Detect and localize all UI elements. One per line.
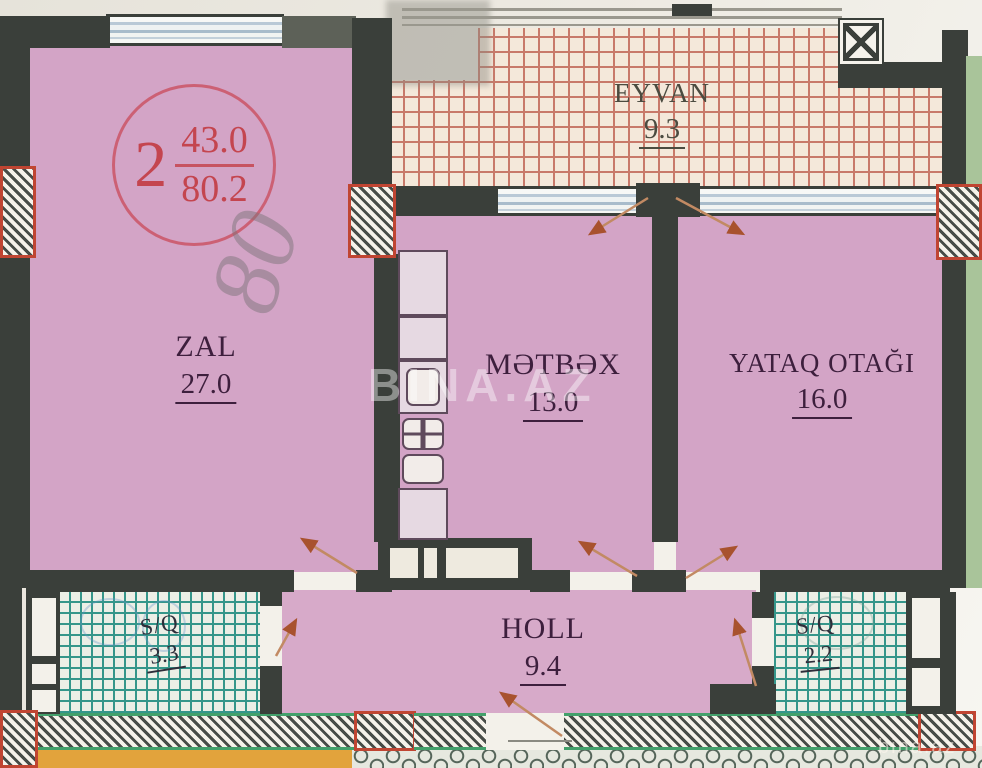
exterior-green-edge [966, 56, 982, 588]
stamp-areas: 43.0 80.2 [175, 120, 254, 211]
bathroom-fixture-sketch [80, 598, 140, 646]
door-opening [260, 606, 282, 666]
wall-segment [838, 62, 948, 88]
wall-segment [942, 30, 968, 588]
room-name: S/Q [138, 609, 180, 641]
kitchen-counter [398, 316, 448, 360]
wall-segment [26, 570, 294, 592]
cabinet-door [424, 548, 437, 578]
label-zal: ZAL 27.0 [175, 330, 236, 404]
wall-segment [0, 16, 30, 172]
balcony-tiles [388, 80, 480, 188]
wall-segment [632, 570, 686, 592]
door-opening [686, 572, 760, 590]
stamp-living-area: 43.0 [175, 120, 254, 167]
stamp-unit-number: 2 [134, 132, 167, 198]
scan-smudge [386, 0, 490, 86]
wall-segment [710, 684, 776, 714]
balcony-railing [402, 24, 842, 26]
door-opening [752, 618, 774, 666]
wall-segment [636, 183, 700, 217]
wall-segment [260, 592, 282, 606]
label-holl: HOLL 9.4 [501, 612, 585, 686]
kitchen-stove [402, 418, 444, 450]
watermark-center: BINA.AZ [368, 358, 597, 412]
hatched-column [348, 184, 396, 258]
door-opening [294, 572, 358, 590]
window [106, 14, 284, 46]
column-marker-icon [843, 23, 879, 61]
window [912, 598, 940, 658]
room-area: 3.3 [143, 639, 186, 674]
label-yataq: YATAQ OTAĞI 16.0 [729, 348, 915, 419]
hatched-wall [34, 713, 356, 750]
room-name: EYVAN [614, 78, 710, 109]
window [698, 186, 938, 216]
wall-segment [352, 18, 392, 188]
hatched-column [0, 710, 38, 768]
room-area: 2.2 [798, 640, 840, 673]
wall-segment [0, 586, 22, 714]
cabinet-door [390, 548, 418, 578]
wall-segment [530, 570, 570, 592]
wall-segment [652, 214, 678, 542]
kitchen-appliance [402, 454, 444, 484]
hatched-column [0, 166, 36, 258]
wall-segment [282, 16, 356, 48]
room-area: 16.0 [792, 383, 853, 419]
room-area: 9.4 [520, 650, 566, 686]
window [32, 690, 56, 712]
hatched-wall [414, 713, 488, 750]
cabinet-door [446, 548, 518, 578]
door-opening [570, 572, 632, 590]
wall-segment [260, 666, 282, 714]
label-eyvan: EYVAN 9.3 [614, 78, 710, 149]
floor-plan: ZAL 27.0 MƏTBƏX 13.0 YATAQ OTAĞI 16.0 EY… [0, 0, 982, 768]
balcony-tiles [838, 86, 942, 188]
entry-opening [486, 713, 566, 750]
wall-segment [760, 570, 950, 592]
window [912, 668, 940, 706]
hatched-column [936, 184, 982, 260]
wall-segment [0, 256, 30, 588]
room-name: YATAQ OTAĞI [729, 348, 915, 379]
room-name: S/Q [795, 610, 836, 640]
room-name: ZAL [175, 330, 236, 364]
window [496, 186, 638, 216]
room-area: 27.0 [176, 368, 237, 404]
balcony-railing [402, 16, 842, 19]
bottom-orange-strip [36, 748, 352, 768]
kitchen-counter [398, 488, 448, 540]
wall-segment [672, 4, 712, 16]
room-area: 9.3 [639, 113, 685, 149]
window [32, 664, 56, 684]
hatched-wall [564, 713, 920, 750]
balcony-railing [402, 8, 842, 11]
kitchen-counter [398, 250, 448, 316]
wall-segment [386, 186, 498, 216]
window [32, 598, 56, 656]
watermark-corner: bina.az [878, 736, 957, 759]
wall-segment [752, 592, 774, 618]
hatched-column [354, 711, 416, 751]
room-name: HOLL [501, 612, 585, 646]
label-sq-right: S/Q 2.2 [795, 610, 840, 673]
